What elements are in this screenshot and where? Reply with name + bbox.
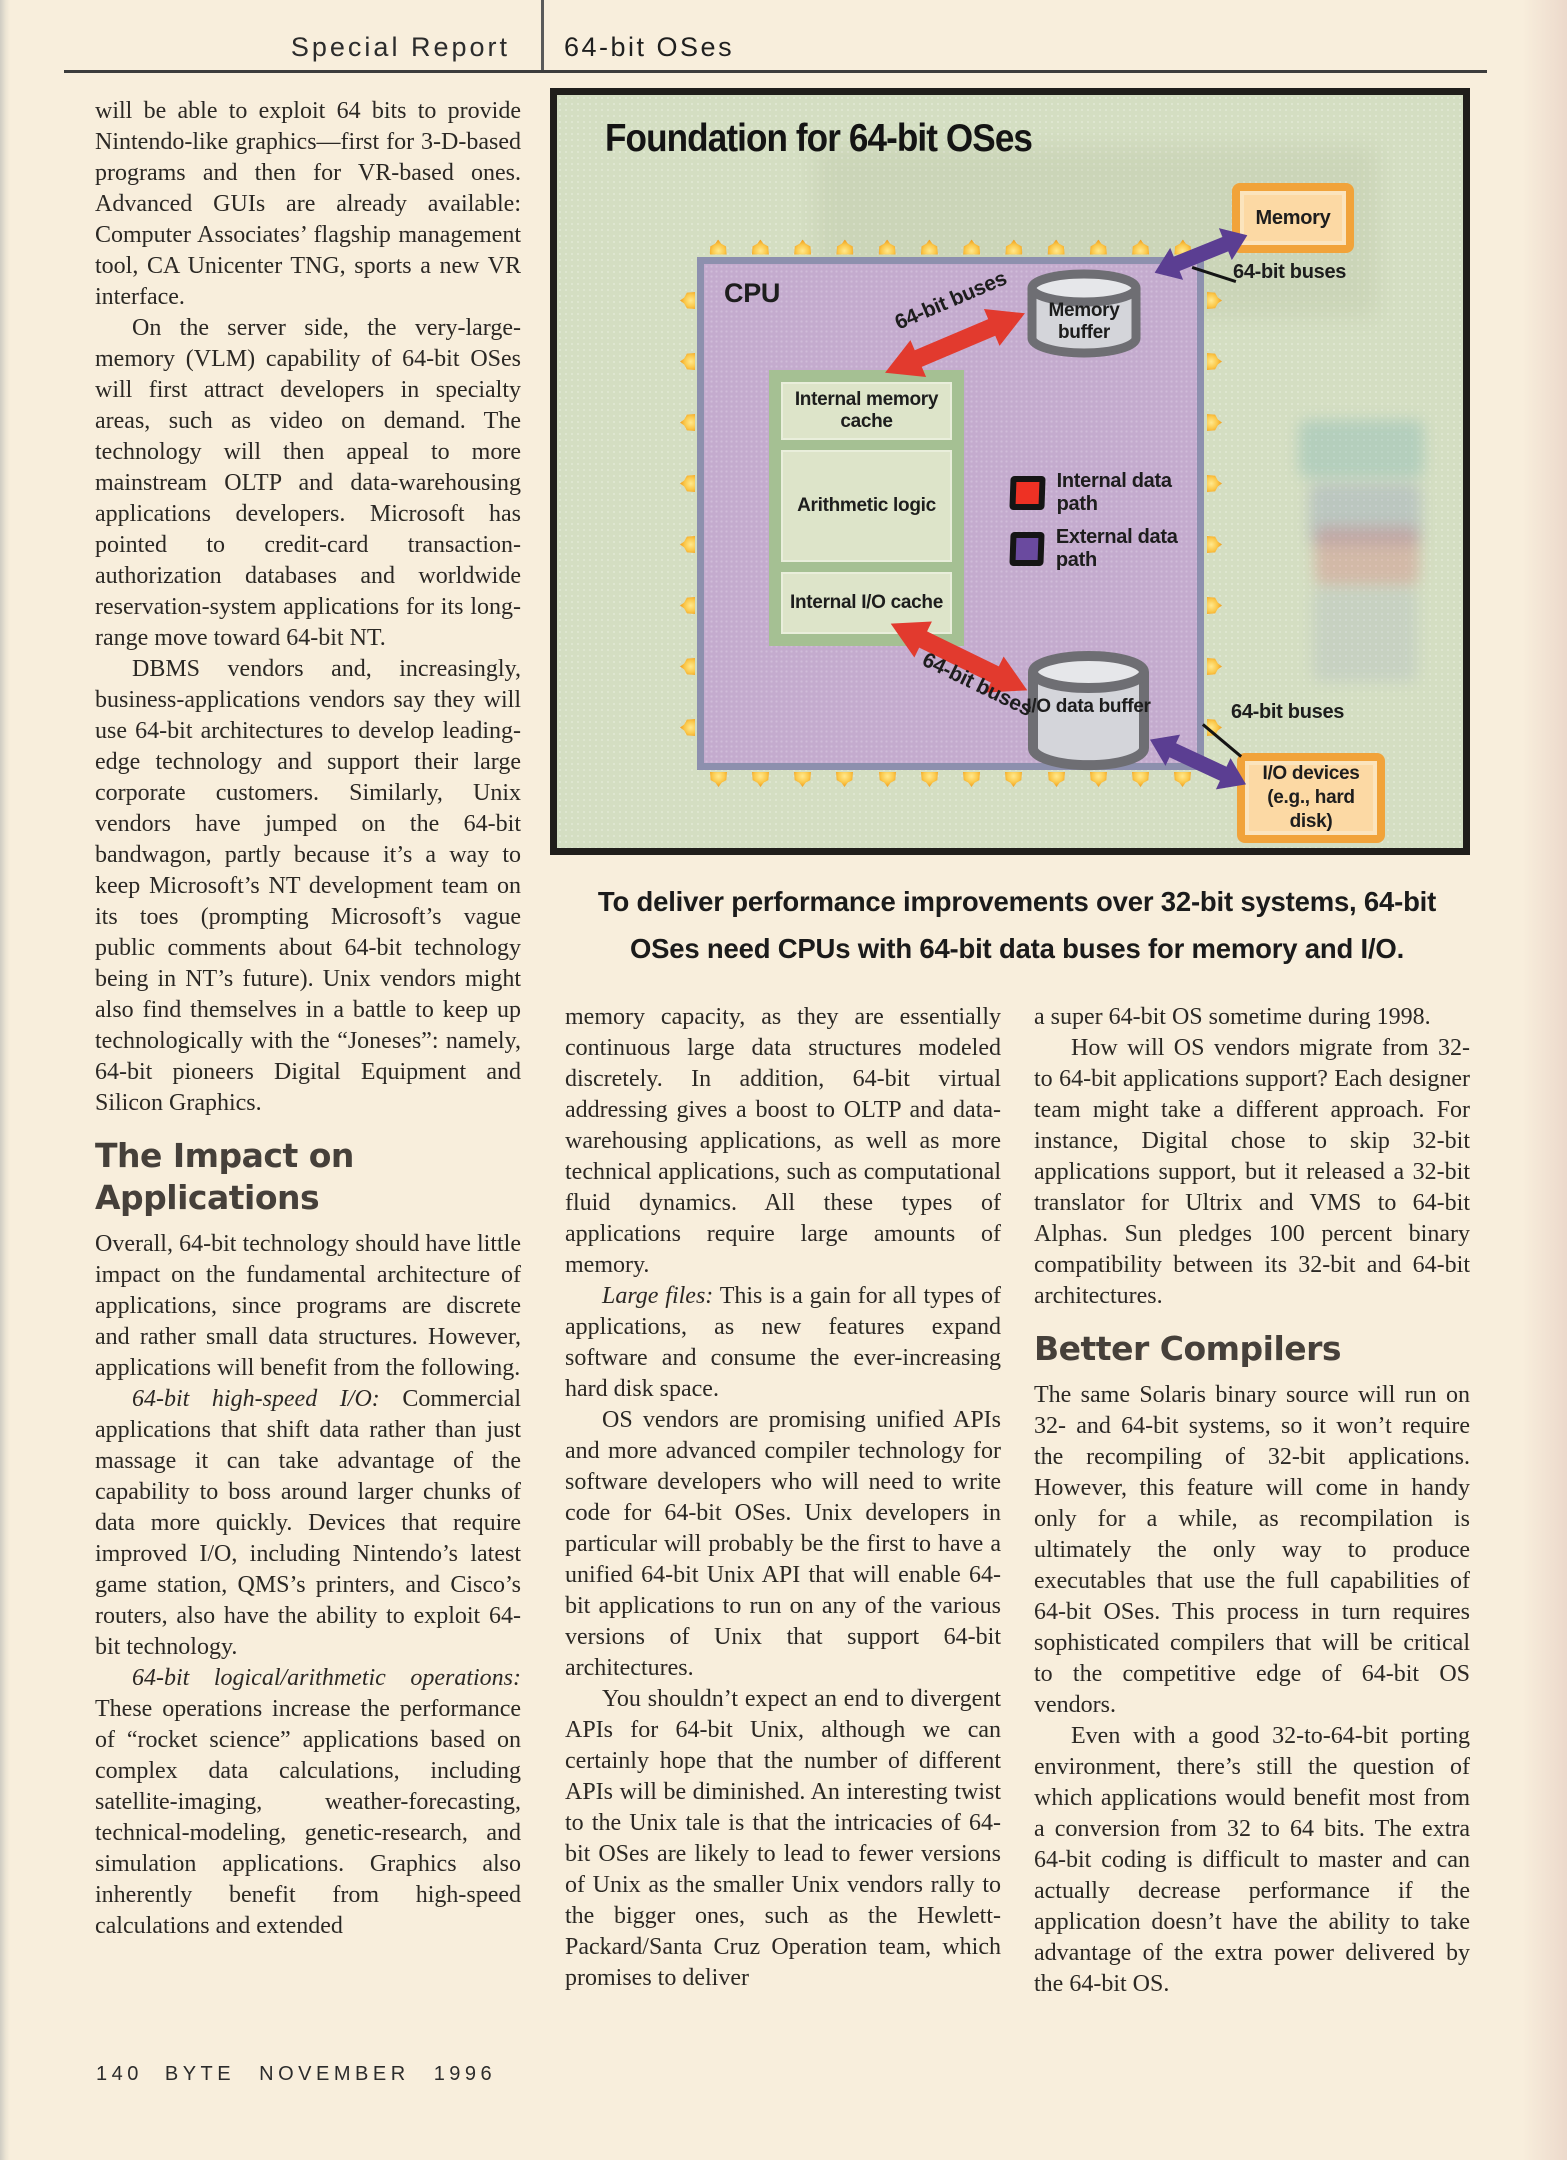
bus-pin-icon — [794, 772, 811, 787]
legend-label: External data path — [1056, 526, 1197, 572]
bus-label-external-io: 64-bit buses — [1231, 701, 1344, 724]
page-number: 140 — [96, 2063, 143, 2085]
italic-lead: Large files: — [602, 1283, 713, 1309]
magazine-issue: BYTE NOVEMBER 1996 — [165, 2063, 496, 2085]
paragraph: will be able to exploit 64 bits to provi… — [95, 96, 521, 313]
paragraph: Overall, 64-bit technology should have l… — [95, 1229, 521, 1384]
legend-label: Internal data path — [1057, 470, 1197, 516]
bus-pin-icon — [1090, 240, 1107, 255]
paragraph: Even with a good 32-to-64-bit porting en… — [1034, 1721, 1470, 2000]
io-devices-box: I/O devices (e.g., hard disk) — [1237, 753, 1385, 843]
paragraph: memory capacity, as they are essentially… — [565, 1002, 1001, 1281]
bus-pin-icon — [1207, 597, 1222, 614]
italic-lead: 64-bit logical/arithmetic operations: — [132, 1665, 521, 1691]
bus-pin-icon — [1005, 772, 1022, 787]
paragraph: a super 64-bit OS sometime during 1998. — [1034, 1002, 1470, 1033]
header-topic-label: 64-bit OSes — [564, 32, 734, 63]
bus-pin-icon — [710, 240, 727, 255]
arithmetic-logic-block: Arithmetic logic — [781, 450, 952, 562]
legend: Internal data path External data path — [1010, 470, 1197, 582]
page-showthrough — [1299, 420, 1424, 478]
bus-pin-icon — [1132, 240, 1149, 255]
header-section-label: Special Report — [210, 32, 510, 63]
internal-data-path-swatch — [1009, 476, 1045, 510]
header-divider — [541, 0, 544, 72]
italic-lead: 64-bit high-speed I/O: — [132, 1386, 380, 1412]
bus-pin-icon — [680, 414, 695, 431]
legend-item-internal: Internal data path — [1010, 470, 1197, 516]
bus-pin-icon — [1048, 240, 1065, 255]
bus-pin-icon — [921, 240, 938, 255]
paragraph: On the server side, the very-large-memor… — [95, 313, 521, 654]
bus-pin-icon — [752, 772, 769, 787]
io-devices-label: I/O devices (e.g., hard disk) — [1245, 762, 1377, 834]
paragraph: 64-bit high-speed I/O: Commercial applic… — [95, 1384, 521, 1663]
bus-pin-icon — [710, 772, 727, 787]
page-showthrough — [1315, 527, 1419, 585]
figure-title: Foundation for 64-bit OSes — [605, 117, 1032, 161]
page-showthrough — [1309, 483, 1421, 545]
bus-pin-icon — [963, 772, 980, 787]
bus-pin-icon — [794, 240, 811, 255]
page-showthrough — [1313, 587, 1417, 682]
figure-foundation-64bit-oses: Foundation for 64-bit OSes CPU Internal … — [550, 88, 1470, 855]
paragraph: How will OS vendors migrate from 32- to … — [1034, 1033, 1470, 1312]
cpu-label: CPU — [724, 278, 780, 309]
bus-pin-icon — [921, 772, 938, 787]
bus-pin-icon — [680, 292, 695, 309]
paragraph: The same Solaris binary source will run … — [1034, 1380, 1470, 1721]
bus-pin-icon — [879, 240, 896, 255]
left-column: will be able to exploit 64 bits to provi… — [95, 96, 521, 1942]
impact-on-applications-heading: The Impact on Applications — [95, 1135, 521, 1219]
paragraph: DBMS vendors and, increasingly, business… — [95, 654, 521, 1119]
cpu-internal-stack: Internal memory cache Arithmetic logic I… — [769, 370, 964, 646]
memory-label: Memory — [1256, 206, 1331, 230]
header-rule — [64, 70, 1487, 73]
bus-pin-icon — [680, 658, 695, 675]
bus-label-external-memory: 64-bit buses — [1233, 261, 1346, 284]
bus-pin-icon — [752, 240, 769, 255]
bus-pins-right — [1205, 270, 1223, 758]
right-column: a super 64-bit OS sometime during 1998. … — [1034, 1002, 1470, 2000]
external-data-path-swatch — [1009, 532, 1044, 566]
bus-pin-icon — [680, 597, 695, 614]
page-footer: 140BYTE NOVEMBER 1996 — [96, 2063, 496, 2086]
bus-pin-icon — [680, 536, 695, 553]
bus-pin-icon — [1207, 353, 1222, 370]
paragraph: OS vendors are promising unified APIs an… — [565, 1405, 1001, 1684]
legend-item-external: External data path — [1010, 526, 1197, 572]
bus-pins-top — [697, 238, 1204, 256]
bus-pin-icon — [680, 353, 695, 370]
paragraph: You shouldn’t expect an end to divergent… — [565, 1684, 1001, 1994]
internal-memory-cache-block: Internal memory cache — [781, 382, 952, 440]
bus-pin-icon — [680, 719, 695, 736]
bus-pins-left — [678, 270, 696, 758]
bus-pin-icon — [836, 240, 853, 255]
memory-buffer-cylinder: Memory buffer — [1025, 268, 1143, 360]
paragraph: Large files: This is a gain for all type… — [565, 1281, 1001, 1405]
memory-buffer-label: Memory buffer — [1025, 300, 1143, 344]
bus-pin-icon — [1207, 292, 1222, 309]
bus-pin-icon — [1207, 536, 1222, 553]
bus-pin-icon — [836, 772, 853, 787]
bus-pin-icon — [1207, 475, 1222, 492]
bus-pin-icon — [963, 240, 980, 255]
better-compilers-heading: Better Compilers — [1034, 1328, 1470, 1370]
paragraph: 64-bit logical/arithmetic operations: Th… — [95, 1663, 521, 1942]
figure-caption: To deliver performance improvements over… — [563, 878, 1471, 972]
bus-pin-icon — [680, 475, 695, 492]
bus-pin-icon — [1207, 658, 1222, 675]
bus-pin-icon — [1207, 414, 1222, 431]
bus-pin-icon — [1005, 240, 1022, 255]
bus-pin-icon — [879, 772, 896, 787]
middle-column: memory capacity, as they are essentially… — [565, 1002, 1001, 1994]
